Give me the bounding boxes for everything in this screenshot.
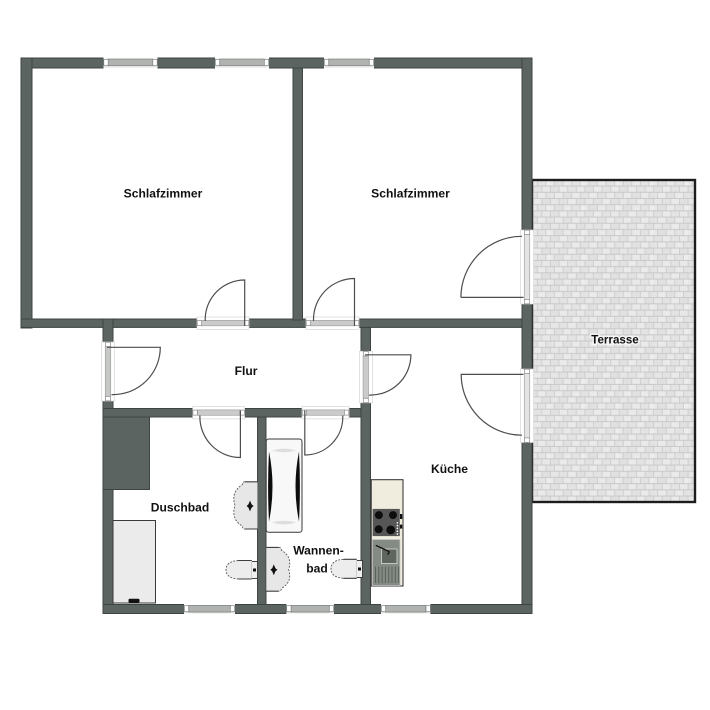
svg-text:Wannen-: Wannen- [293,543,344,557]
svg-text:Duschbad: Duschbad [151,500,209,514]
svg-text:Flur: Flur [235,364,258,378]
svg-text:bad: bad [306,562,328,576]
svg-text:Terrasse: Terrasse [591,334,639,347]
svg-text:Schlafzimmer: Schlafzimmer [124,187,203,201]
svg-text:Schlafzimmer: Schlafzimmer [371,187,450,201]
svg-text:Küche: Küche [431,462,468,476]
